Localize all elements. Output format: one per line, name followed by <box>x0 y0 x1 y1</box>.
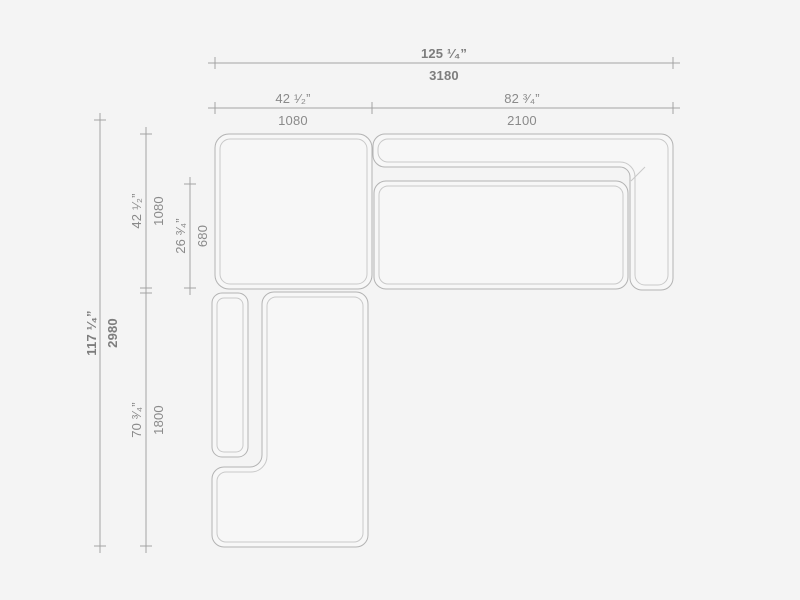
dim-module-widths: 42 ¹⁄₂” 1080 82 ³⁄₄” 2100 <box>208 91 680 128</box>
chaise-length-mm-label: 1800 <box>151 405 166 435</box>
dim-seat-depth: 26 ³⁄₄” 680 <box>173 177 210 295</box>
corner-module-outline <box>215 134 372 289</box>
chaise-length-inches-label: 70 ³⁄₄” <box>129 402 144 438</box>
corner-width-inches-label: 42 ¹⁄₂” <box>275 91 310 106</box>
overall-depth-inches-label: 117 ¹⁄₄” <box>84 310 99 355</box>
overall-depth-mm-label: 2980 <box>105 318 120 348</box>
overall-width-mm-label: 3180 <box>429 68 459 83</box>
sofa-width-mm-label: 2100 <box>507 113 537 128</box>
seat-depth-mm-label: 680 <box>195 225 210 247</box>
overall-width-inches-label: 125 ¹⁄₄” <box>421 46 467 61</box>
dim-overall-width: 125 ¹⁄₄” 3180 <box>208 46 680 83</box>
corner-depth-inches-label: 42 ¹⁄₂” <box>129 193 144 228</box>
sofa-plan-drawing: 125 ¹⁄₄” 3180 42 ¹⁄₂” 1080 82 ³⁄₄” 2100 … <box>0 0 800 600</box>
sofa-module <box>373 134 673 290</box>
dim-chaise-length: 70 ³⁄₄” 1800 <box>129 286 166 553</box>
seat-depth-inches-label: 26 ³⁄₄” <box>173 218 188 254</box>
chaise-module <box>212 292 368 547</box>
dim-overall-depth: 117 ¹⁄₄” 2980 <box>84 113 120 553</box>
sofa-seat-outline <box>374 181 628 289</box>
dim-corner-depth: 42 ¹⁄₂” 1080 <box>129 127 166 295</box>
corner-module <box>215 134 372 289</box>
sofa-width-inches-label: 82 ³⁄₄” <box>504 91 540 106</box>
drawing-canvas: 125 ¹⁄₄” 3180 42 ¹⁄₂” 1080 82 ³⁄₄” 2100 … <box>0 0 800 600</box>
corner-depth-mm-label: 1080 <box>151 196 166 226</box>
corner-width-mm-label: 1080 <box>278 113 308 128</box>
